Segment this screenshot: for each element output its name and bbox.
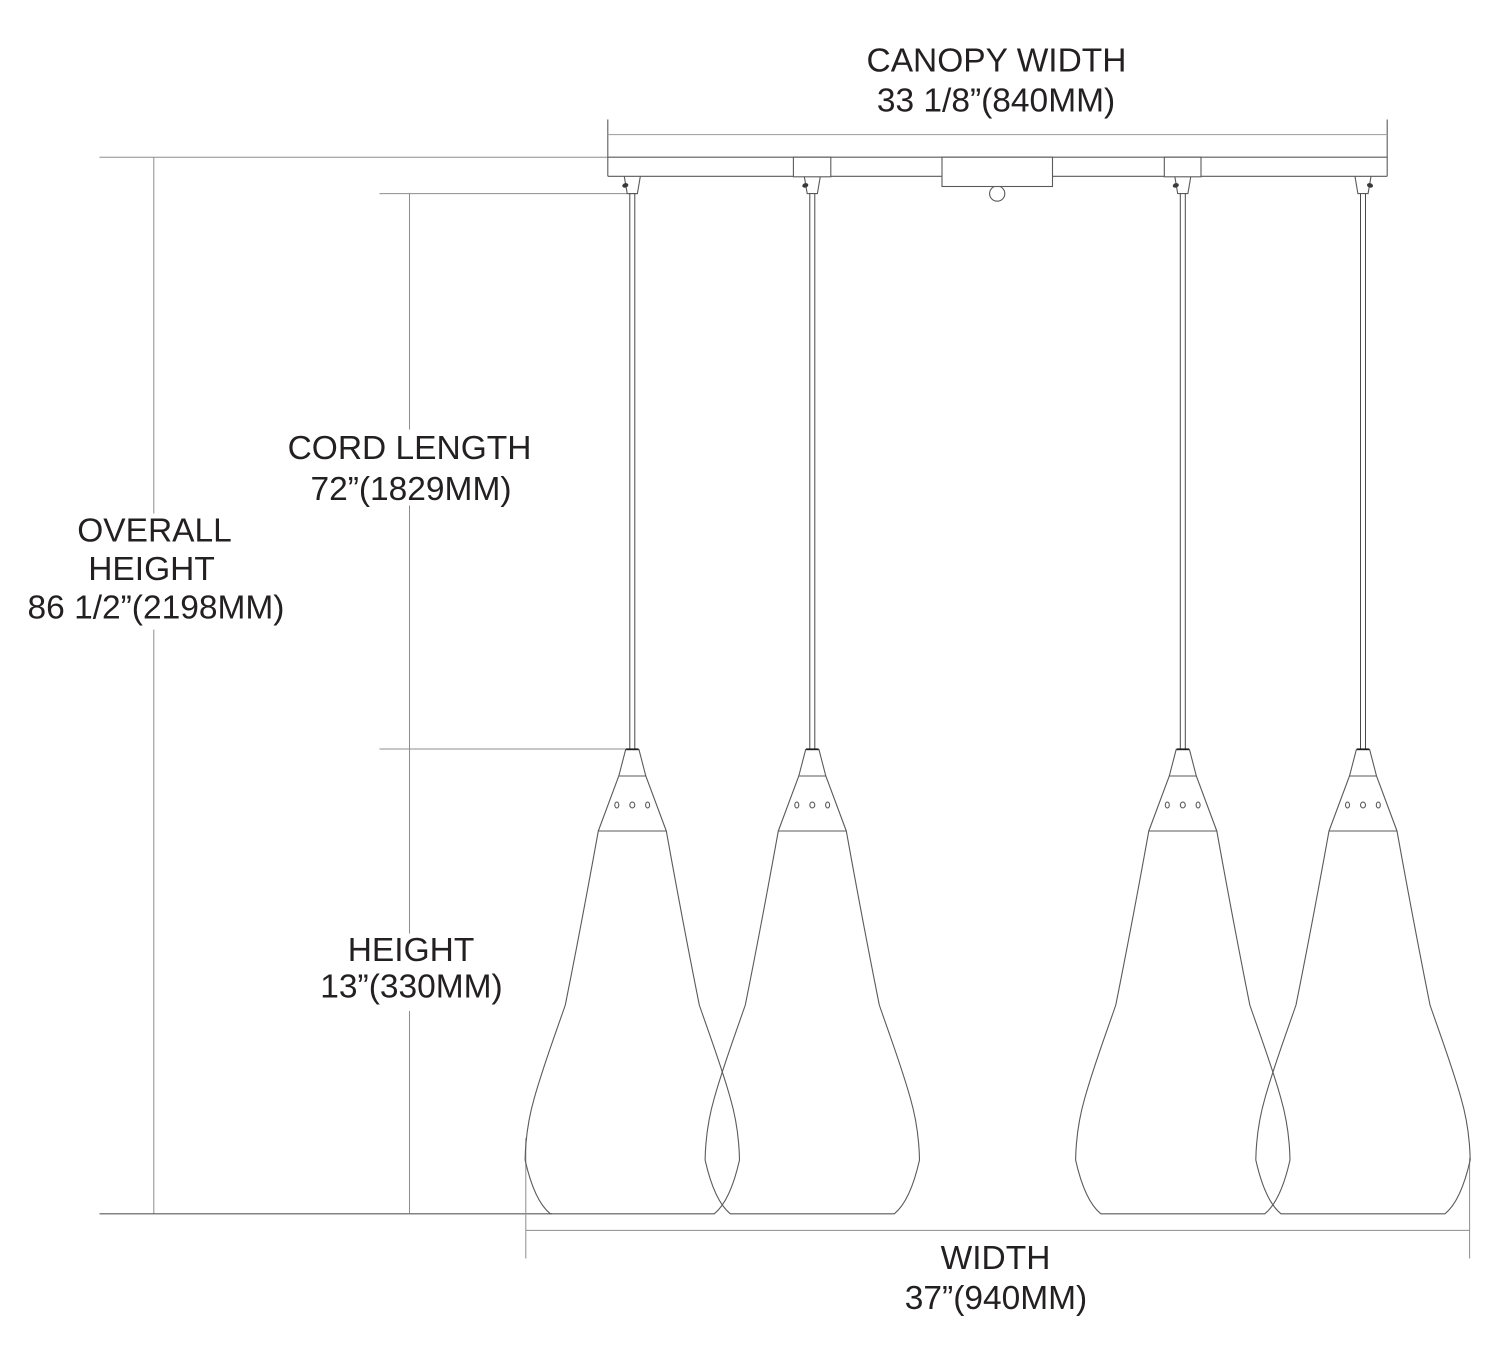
svg-text:72”(1829MM): 72”(1829MM) — [310, 471, 511, 508]
svg-text:CANOPY WIDTH: CANOPY WIDTH — [867, 43, 1127, 80]
svg-text:33 1/8”(840MM): 33 1/8”(840MM) — [877, 83, 1115, 120]
svg-text:HEIGHT: HEIGHT — [348, 932, 475, 969]
svg-text:13”(330MM): 13”(330MM) — [320, 969, 502, 1006]
svg-text:CORD LENGTH: CORD LENGTH — [288, 430, 532, 467]
svg-text:WIDTH: WIDTH — [941, 1240, 1051, 1277]
svg-text:86 1/2”(2198MM): 86 1/2”(2198MM) — [28, 590, 285, 627]
svg-text:HEIGHT: HEIGHT — [88, 551, 215, 588]
svg-text:37”(940MM): 37”(940MM) — [905, 1280, 1087, 1317]
svg-text:OVERALL: OVERALL — [77, 513, 232, 550]
